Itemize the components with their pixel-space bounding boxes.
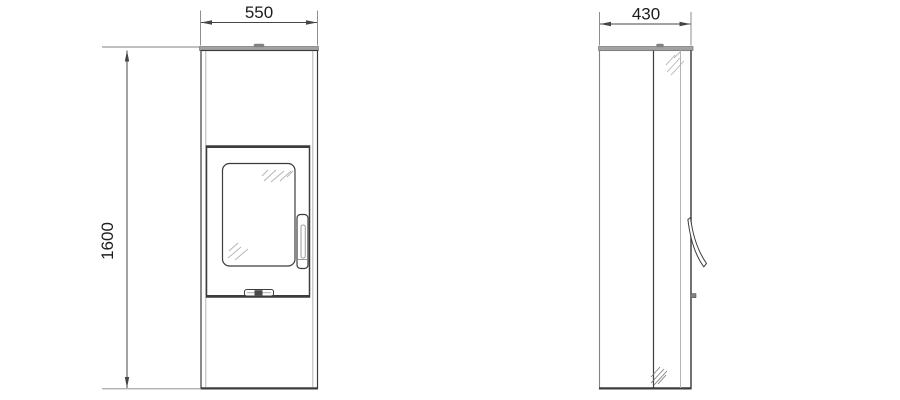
door-glass (223, 164, 296, 267)
door-handle-front (297, 215, 308, 269)
side-top-plate (599, 47, 694, 51)
side-front-knob (691, 294, 696, 298)
front-view (200, 44, 319, 389)
dimension-width: 550 (201, 3, 318, 46)
dimension-depth: 430 (600, 5, 692, 46)
height-arrow-top (125, 51, 129, 62)
height-arrow-bottom (125, 377, 129, 388)
height-dimension-label: 1600 (98, 222, 117, 260)
drawing-svg: 550 1600 430 (0, 0, 900, 400)
width-dimension-label: 550 (245, 3, 273, 22)
stove-dimension-drawing: 550 1600 430 (0, 0, 900, 400)
side-view (599, 44, 707, 389)
depth-arrow-left (600, 22, 611, 26)
width-arrow-right (306, 20, 317, 24)
front-top-bump (254, 44, 264, 47)
side-top-bump (657, 44, 664, 47)
depth-dimension-label: 430 (632, 5, 660, 24)
depth-arrow-right (680, 22, 691, 26)
side-body (600, 51, 692, 389)
air-control-slider (245, 290, 274, 297)
width-arrow-left (201, 20, 212, 24)
dimension-height: 1600 (98, 47, 200, 389)
